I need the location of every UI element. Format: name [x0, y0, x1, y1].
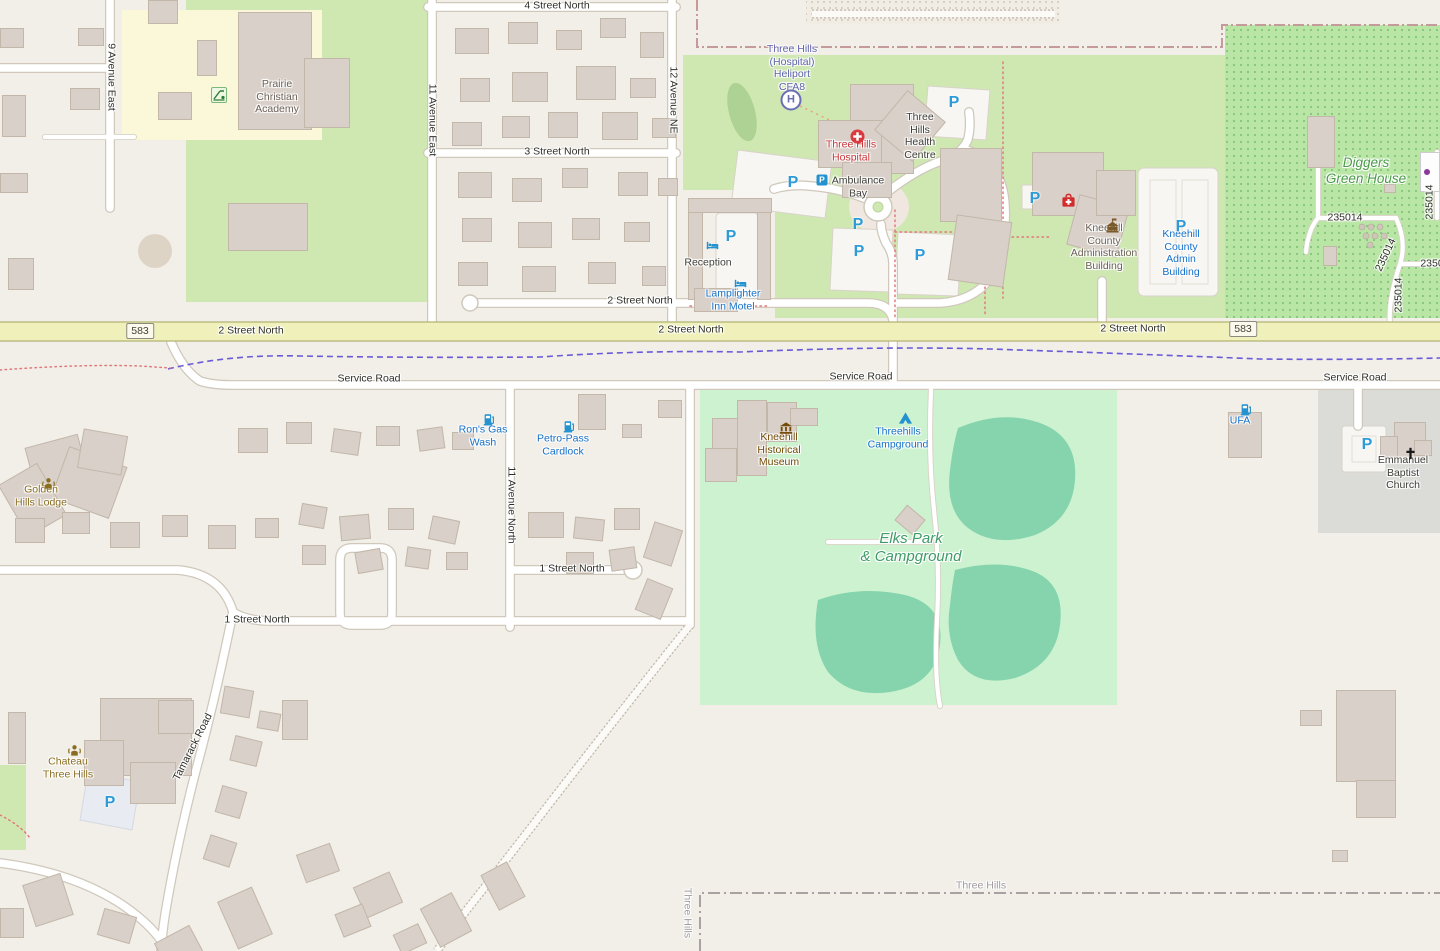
street-label-service-road: Service Road	[337, 373, 400, 386]
street-label-2-street-north: 2 Street North	[607, 295, 672, 308]
road-label-235014: 235014	[1327, 212, 1362, 225]
poi-line: Petro-Pass	[537, 432, 589, 445]
poi-line: Diggers	[1326, 155, 1406, 171]
poi-line: County	[1071, 234, 1138, 247]
road-label-235014: 235014	[1373, 236, 1399, 273]
parking-icon: P	[949, 94, 960, 112]
poi-line: Ambulance	[832, 174, 885, 187]
parking-icon: P	[105, 794, 116, 812]
parking-icon: P	[853, 216, 864, 234]
poi-label-threehills-campground: Threehills Campground	[868, 425, 929, 450]
street-label-12-avenue-ne: 12 Avenue NE	[667, 67, 680, 134]
poi-label-rons-gas-wash: Ron's Gas Wash	[459, 423, 508, 448]
street-label-11-avenue-north: 11 Avenue North	[505, 466, 518, 543]
poi-line: Kneehill	[1071, 222, 1138, 235]
street-label-1-street-north: 1 Street North	[224, 614, 289, 627]
poi-label-diggers-green-house: Diggers Green House	[1326, 155, 1406, 187]
poi-line: Three Hills	[43, 768, 93, 781]
poi-line: Green House	[1326, 171, 1406, 187]
parking-icon: P	[726, 228, 737, 246]
poi-line: Admin	[1162, 253, 1199, 266]
highway-shield-583: 583	[1229, 321, 1257, 337]
street-label-2-street-north: 2 Street North	[1100, 323, 1165, 336]
parking-icon: P	[1030, 190, 1041, 208]
parking-icon: P	[788, 174, 799, 192]
poi-line: Wash	[459, 436, 508, 449]
street-label-4-street-north: 4 Street North	[524, 0, 589, 12]
poi-line: Heliport	[767, 68, 817, 81]
poi-line: Hills Lodge	[15, 496, 67, 509]
heliport-letter: H	[787, 94, 795, 106]
poi-line: County	[1162, 240, 1199, 253]
parking-icon: P	[1176, 218, 1187, 236]
poi-line: Campground	[868, 438, 929, 451]
poi-label-emmanuel-baptist-church: Emmanuel Baptist Church	[1378, 454, 1428, 492]
poi-line: Hospital	[826, 151, 876, 164]
poi-line: Prairie	[255, 78, 299, 91]
road-label-2350: 2350	[1420, 258, 1440, 271]
poi-line: Building	[1162, 266, 1199, 279]
road-label-235014: 235014	[1393, 277, 1406, 312]
street-label-tamarack-road: Tamarack Road	[171, 711, 216, 782]
poi-line: & Campground	[861, 548, 962, 566]
map-canvas[interactable]: 4 Street North 3 Street North 2 Street N…	[0, 0, 1440, 951]
poi-line: Inn Motel	[706, 300, 761, 313]
poi-label-ufa: UFA	[1230, 415, 1250, 428]
road-label-235014: 235014	[1424, 184, 1437, 219]
poi-label-prairie-christian-academy: Prairie Christian Academy	[255, 78, 299, 116]
poi-label-kneehill-county-administration-building: Kneehill County Administration Building	[1071, 222, 1138, 272]
poi-label-chateau-three-hills: Chateau Three Hills	[43, 755, 93, 780]
poi-label-kneehill-historical-museum: Kneehill Historical Museum	[757, 431, 800, 469]
poi-line: Baptist	[1378, 467, 1428, 480]
street-label-9-avenue-east: 9 Avenue East	[105, 43, 118, 111]
poi-line: Threehills	[868, 425, 929, 438]
poi-line: Elks Park	[861, 530, 962, 548]
poi-line: Cardlock	[537, 445, 589, 458]
poi-line: Administration	[1071, 247, 1138, 260]
poi-line: (Hospital)	[767, 55, 817, 68]
poi-line: Building	[1071, 260, 1138, 273]
poi-line: Academy	[255, 103, 299, 116]
poi-line: Historical	[757, 444, 800, 457]
poi-line: Hills	[904, 123, 936, 136]
poi-line: Museum	[757, 456, 800, 469]
street-label-service-road: Service Road	[1323, 372, 1386, 385]
poi-line: Bay	[832, 187, 885, 200]
poi-line: Health	[904, 136, 936, 149]
parking-icon: P	[1362, 436, 1373, 454]
poi-line: Church	[1378, 479, 1428, 492]
poi-label-reception: Reception	[684, 257, 731, 270]
heliport-icon: H	[781, 90, 802, 111]
poi-label-petro-pass-cardlock: Petro-Pass Cardlock	[537, 432, 589, 457]
street-label-2-street-north: 2 Street North	[658, 324, 723, 337]
poi-line: Three	[904, 111, 936, 124]
street-label-3-street-north: 3 Street North	[524, 146, 589, 159]
poi-label-heliport: Three Hills (Hospital) Heliport CFA8	[767, 43, 817, 93]
boundary-label-three-hills: Three Hills	[956, 880, 1006, 893]
poi-label-ambulance-bay: Ambulance Bay	[832, 174, 885, 199]
street-label-1-street-north: 1 Street North	[539, 563, 604, 576]
boundary-label-three-hills: Three Hills	[681, 888, 694, 938]
poi-line: Emmanuel	[1378, 454, 1428, 467]
poi-line: Three Hills	[767, 43, 817, 56]
street-label-2-street-north: 2 Street North	[218, 325, 283, 338]
parking-icon: P	[915, 247, 926, 265]
poi-line: Christian	[255, 91, 299, 104]
highway-shield-583: 583	[126, 323, 154, 339]
poi-line: Centre	[904, 149, 936, 162]
parking-icon: P	[854, 243, 865, 261]
poi-label-elks-park-campground: Elks Park & Campground	[861, 530, 962, 566]
poi-label-lamplighter-inn-motel: Lamplighter Inn Motel	[706, 287, 761, 312]
viewpoint-dot-icon	[1424, 169, 1430, 175]
poi-line: Lamplighter	[706, 287, 761, 300]
labels-layer: 4 Street North 3 Street North 2 Street N…	[0, 0, 1440, 951]
parking-square-icon: P	[817, 175, 828, 186]
street-label-service-road: Service Road	[829, 371, 892, 384]
street-label-11-avenue-east: 11 Avenue East	[426, 84, 439, 157]
poi-label-three-hills-health-centre: Three Hills Health Centre	[904, 111, 936, 161]
